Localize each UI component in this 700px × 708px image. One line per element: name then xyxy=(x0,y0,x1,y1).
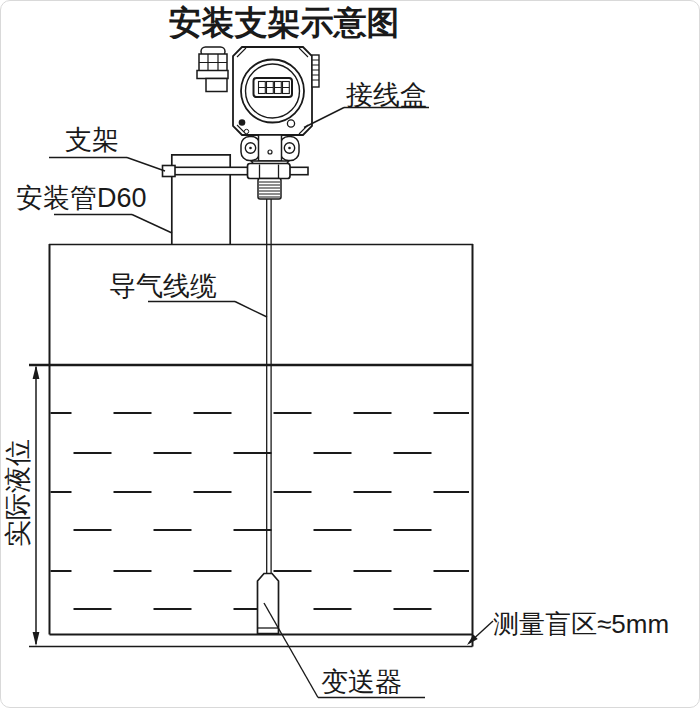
probe xyxy=(258,574,279,634)
installation-diagram: 安装支架示意图 实际液位 xyxy=(1,1,700,708)
air-cable xyxy=(267,198,271,575)
arrow-down-icon xyxy=(33,632,40,646)
screw-icon xyxy=(287,120,294,127)
arrow-up-icon xyxy=(33,365,40,379)
level-dimension xyxy=(33,365,40,646)
callout-blind-zone: 测量盲区≈5mm xyxy=(467,609,669,645)
callout-mounting-pipe: 安装管D60 xyxy=(16,183,172,233)
label-blind-zone: 测量盲区≈5mm xyxy=(493,609,669,639)
label-bracket: 支架 xyxy=(65,125,119,155)
label-transmitter: 变送器 xyxy=(321,667,402,697)
label-air-cable: 导气线缆 xyxy=(109,271,217,301)
screw-icon xyxy=(239,119,246,126)
page-title: 安装支架示意图 xyxy=(169,4,400,41)
tank xyxy=(29,244,473,647)
side-ribs-icon xyxy=(312,55,319,87)
threaded-stub xyxy=(258,179,281,200)
lower-flange xyxy=(241,135,299,165)
label-junction-box: 接线盒 xyxy=(346,80,427,110)
cable-gland-icon xyxy=(197,47,228,92)
callout-junction-box: 接线盒 xyxy=(304,80,429,128)
label-mounting-pipe: 安装管D60 xyxy=(16,183,147,213)
label-actual-level: 实际液位 xyxy=(3,439,33,547)
hex-nut xyxy=(248,164,291,179)
transmitter-head xyxy=(197,47,319,199)
lcd-display xyxy=(254,78,293,97)
diagram-page: 安装支架示意图 实际液位 xyxy=(0,0,700,708)
callout-transmitter: 变送器 xyxy=(264,603,425,698)
screw-icon xyxy=(244,129,248,133)
callout-bracket: 支架 xyxy=(49,125,165,171)
callout-air-cable: 导气线缆 xyxy=(109,271,267,317)
